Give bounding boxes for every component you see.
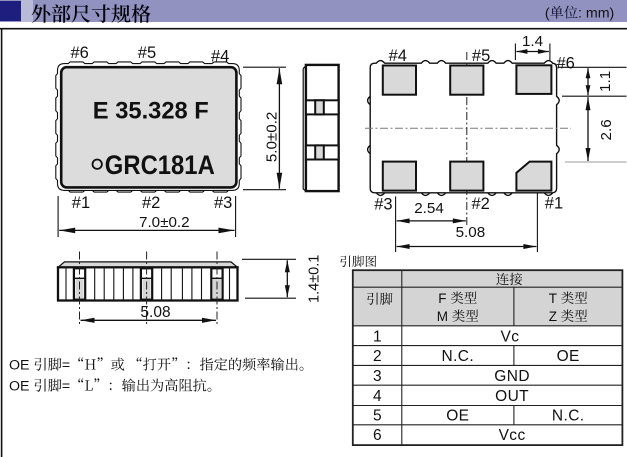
svg-text:5.08: 5.08 [140,304,170,321]
svg-text:4: 4 [373,388,382,405]
svg-text:E 35.328 F: E 35.328 F [93,98,209,125]
svg-text:#2: #2 [472,195,490,213]
svg-text:3: 3 [373,368,382,385]
svg-text:OUT: OUT [495,388,529,405]
svg-text:Vc: Vc [501,328,520,345]
svg-text:5.08: 5.08 [456,224,486,241]
svg-text:#6: #6 [557,54,575,72]
svg-text:: mm): : mm) [578,6,614,22]
svg-text:1.4±0.1: 1.4±0.1 [307,255,323,303]
svg-text:N.C.: N.C. [441,348,474,365]
svg-text:OE: OE [557,348,580,365]
svg-text:2.6: 2.6 [598,119,615,140]
svg-text:#1: #1 [72,194,90,212]
svg-text:1.4: 1.4 [522,33,543,50]
svg-text:OE: OE [9,379,30,395]
svg-text:OE: OE [446,407,469,424]
svg-text:#4: #4 [389,47,407,65]
svg-text:2: 2 [373,348,382,365]
svg-text:N.C.: N.C. [552,407,585,424]
svg-text:1: 1 [373,328,382,345]
svg-text:5: 5 [373,407,382,424]
svg-text:GND: GND [494,368,530,385]
svg-text:2.54: 2.54 [414,200,444,217]
svg-text:6: 6 [373,427,382,444]
svg-text:F: F [438,291,446,306]
svg-text:#3: #3 [374,196,392,214]
svg-text:M: M [437,309,448,324]
svg-text:Z: Z [549,309,557,324]
svg-text:#1: #1 [545,195,563,213]
svg-text:#5: #5 [472,47,490,65]
svg-text:(: ( [545,6,550,22]
svg-text:T: T [549,291,557,306]
svg-text:Vcc: Vcc [499,427,526,444]
svg-text:1.1: 1.1 [597,71,614,92]
svg-text:#2: #2 [142,194,160,212]
svg-text:=: = [62,358,70,374]
svg-text:OE: OE [9,358,30,374]
svg-text:7.0±0.2: 7.0±0.2 [139,214,190,231]
svg-text:=: = [62,379,70,395]
svg-text:#6: #6 [71,44,89,62]
svg-text:5.0±0.2: 5.0±0.2 [264,112,281,163]
svg-text:#4: #4 [211,47,229,65]
svg-text:GRC181A: GRC181A [105,150,215,180]
svg-text:#5: #5 [138,44,156,62]
svg-text:#3: #3 [214,194,232,212]
